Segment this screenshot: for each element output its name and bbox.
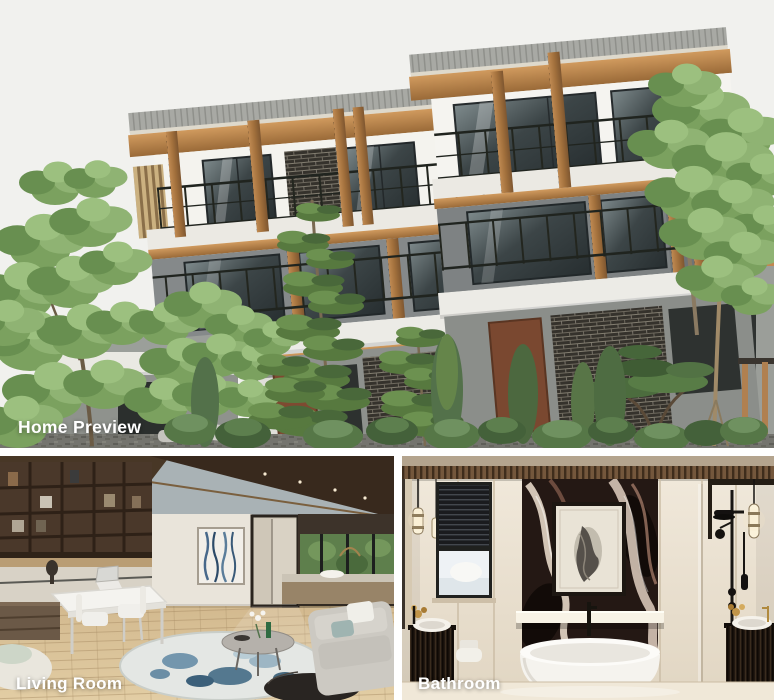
gallery-bottom-row: Living Room bbox=[0, 456, 774, 700]
gallery-item-bathroom[interactable]: Bathroom bbox=[402, 456, 774, 700]
photo-gallery: Home Preview bbox=[0, 0, 774, 700]
gallery-item-home-preview[interactable]: Home Preview bbox=[0, 0, 774, 448]
living-room-photo bbox=[0, 456, 394, 700]
bathroom-photo bbox=[402, 456, 774, 700]
home-preview-photo bbox=[0, 0, 774, 448]
gallery-item-living-room[interactable]: Living Room bbox=[0, 456, 394, 700]
